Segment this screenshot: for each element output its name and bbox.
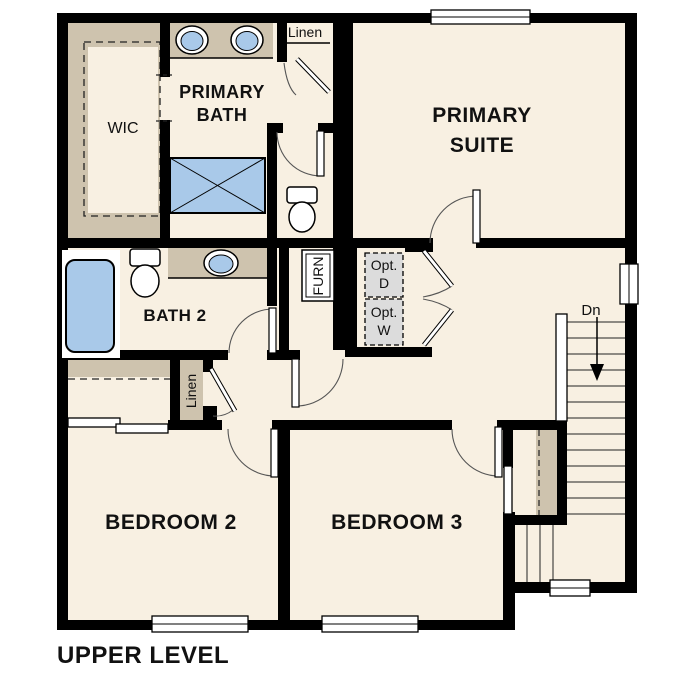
wall-segment [557,420,567,525]
wall-segment [503,512,515,630]
wall-segment [503,430,513,468]
bedroom2-closet-shelf [68,360,170,377]
label-bath2: BATH 2 [143,306,206,325]
bedroom2-closet-bypass-door [116,424,168,433]
floor-plan-page: WIC PRIMARY BATH Linen PRIMARY SUITE BAT… [0,0,687,687]
wall-segment [57,238,428,248]
label-primary-bath-2: BATH [197,105,248,125]
stair-rail [556,314,567,421]
bath2-tub [66,260,114,352]
label-primary-bath-1: PRIMARY [179,82,265,102]
label-wic: WIC [107,120,138,137]
wall-segment [160,120,170,238]
bath2-toilet-bowl [131,265,159,297]
label-bedroom2: BEDROOM 2 [105,511,237,534]
wall-segment [278,420,290,630]
water-closet-toilet-tank [287,187,317,203]
wall-segment [203,350,213,372]
label-linen-hall: Linen [183,374,199,408]
label-furnace: FURN [310,257,326,296]
exterior-notch [515,593,637,630]
bedroom3-closet-door [504,466,512,514]
bedroom3-door [495,427,502,477]
label-opt-dryer-1: Opt. [371,257,397,273]
bedroom2-door [271,429,278,477]
label-primary-suite-2: SUITE [450,134,514,157]
wall-segment [267,248,277,306]
label-opt-washer-2: W [377,322,391,338]
furnace-closet-door [292,359,299,407]
wall-segment [168,420,222,430]
primary-sink-right-basin [236,32,258,51]
bath2-door [269,308,276,353]
wall-segment [267,123,277,238]
wall-segment [170,350,180,420]
label-bedroom3: BEDROOM 3 [331,511,463,534]
wall-segment [476,238,637,248]
bath2-toilet-tank [130,249,160,266]
wall-segment [503,515,567,525]
wall-segment [405,238,433,252]
label-stairs-down: Dn [581,302,600,319]
primary-sink-left-basin [181,32,203,51]
water-closet-door [317,131,324,176]
bedroom2-closet-bypass-door [68,418,120,427]
wall-segment [333,13,353,248]
label-opt-washer-1: Opt. [371,304,397,320]
label-linen-upper: Linen [288,24,322,40]
label-primary-suite-1: PRIMARY [432,104,532,127]
wall-segment [279,248,289,358]
floor-plan-drawing: WIC PRIMARY BATH Linen PRIMARY SUITE BAT… [0,0,687,687]
wall-segment [277,13,287,62]
wall-segment [333,248,357,350]
label-opt-dryer-2: D [379,275,389,291]
bath2-sink-basin [209,255,233,273]
wall-segment [203,406,217,422]
wall-segment [290,420,452,430]
plan-title: UPPER LEVEL [57,642,229,669]
water-closet-toilet-bowl [289,202,315,232]
wall-segment [267,123,283,133]
primary-suite-door [473,190,480,243]
wall-segment [345,347,432,357]
wall-segment [160,13,170,77]
